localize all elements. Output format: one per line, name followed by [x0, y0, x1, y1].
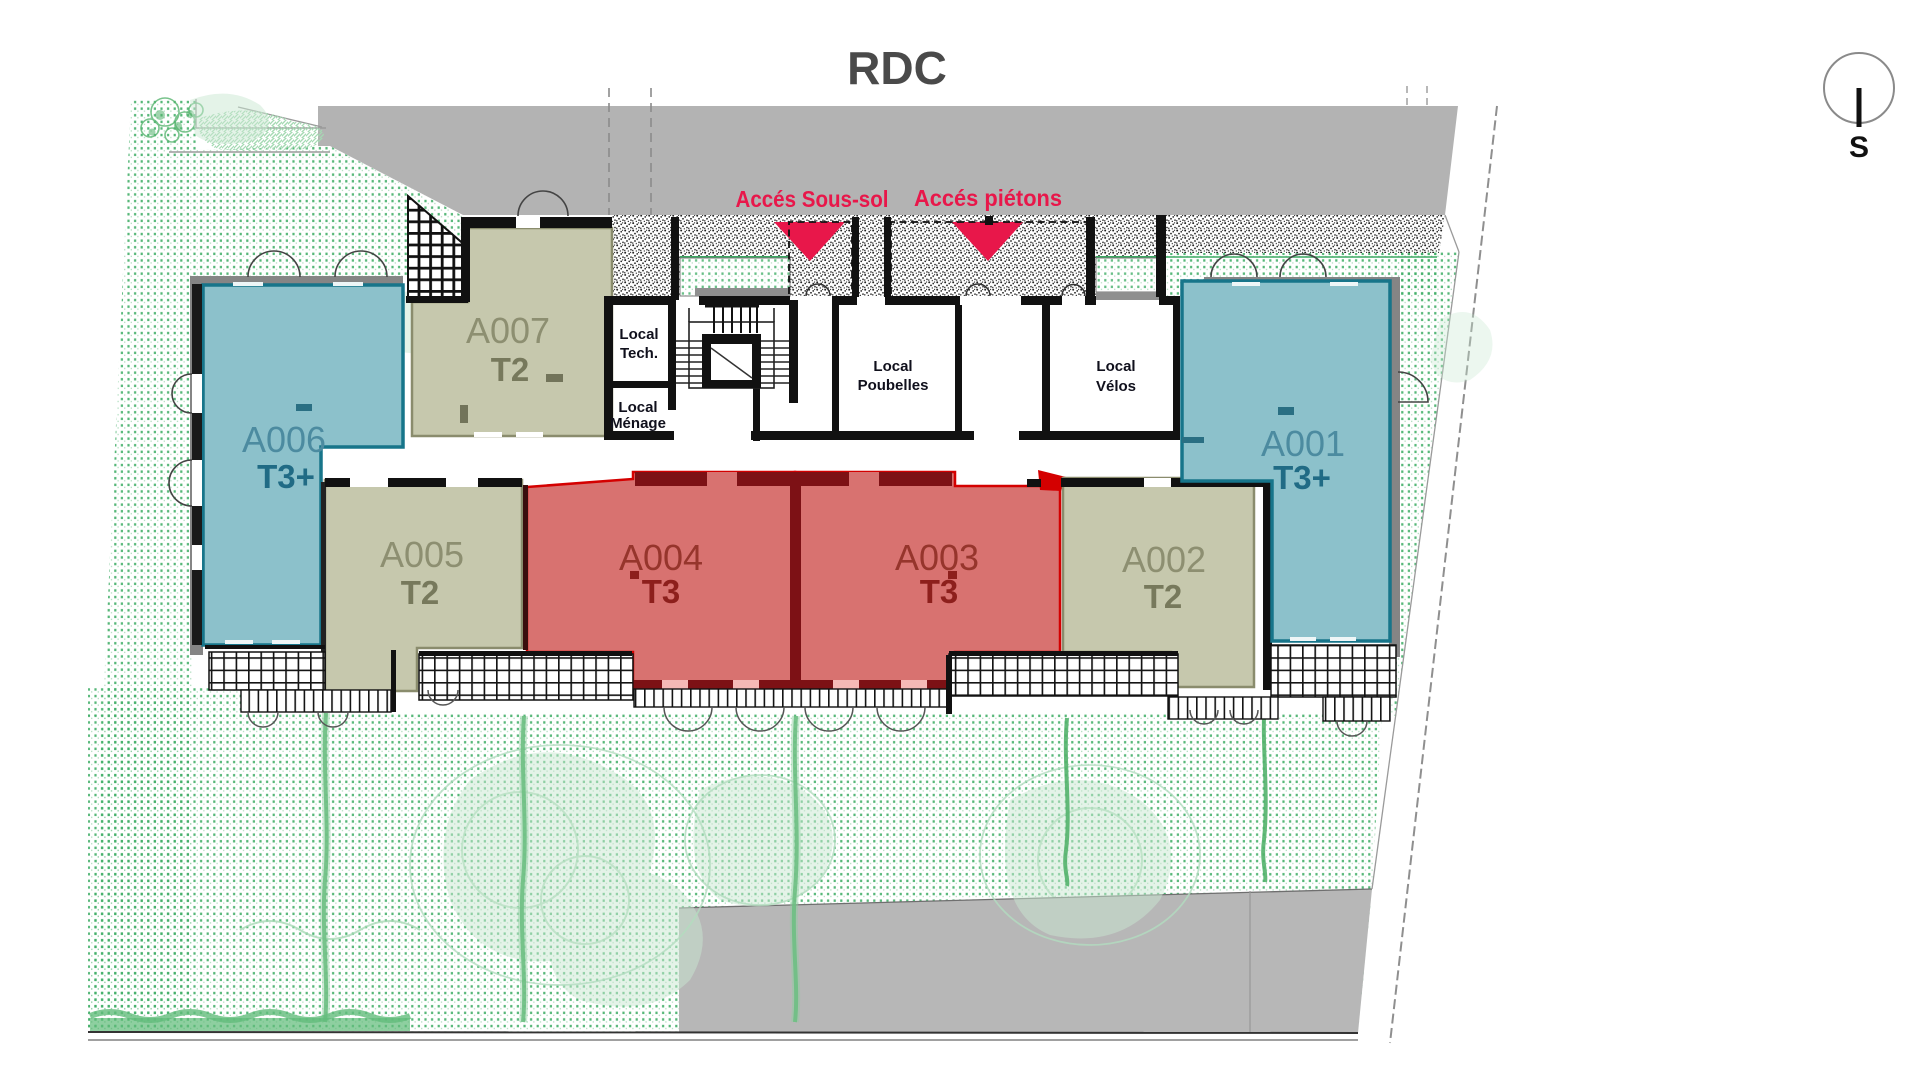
svg-text:A003: A003	[895, 537, 979, 578]
svg-text:T3+: T3+	[1273, 459, 1331, 496]
svg-text:S: S	[1849, 131, 1869, 164]
svg-text:T3: T3	[642, 573, 681, 610]
svg-text:Accés Sous-sol: Accés Sous-sol	[736, 186, 889, 212]
svg-text:Accés piétons: Accés piétons	[914, 185, 1062, 211]
svg-text:A007: A007	[466, 310, 550, 351]
svg-text:A001: A001	[1261, 423, 1345, 464]
svg-text:Local: Local	[618, 399, 657, 416]
svg-text:Ménage: Ménage	[610, 415, 666, 432]
svg-text:Local: Local	[619, 326, 658, 343]
svg-text:Tech.: Tech.	[620, 345, 658, 362]
svg-text:T2: T2	[401, 574, 440, 611]
svg-text:Vélos: Vélos	[1096, 378, 1136, 395]
svg-text:T3+: T3+	[257, 458, 315, 495]
svg-text:Poubelles: Poubelles	[858, 377, 929, 394]
svg-text:A006: A006	[242, 419, 326, 460]
svg-text:Local: Local	[873, 358, 912, 375]
svg-text:RDC: RDC	[847, 42, 947, 94]
svg-text:T2: T2	[1144, 578, 1183, 615]
svg-text:A005: A005	[380, 534, 464, 575]
svg-text:A002: A002	[1122, 539, 1206, 580]
svg-text:T2: T2	[491, 351, 530, 388]
svg-text:Local: Local	[1096, 358, 1135, 375]
